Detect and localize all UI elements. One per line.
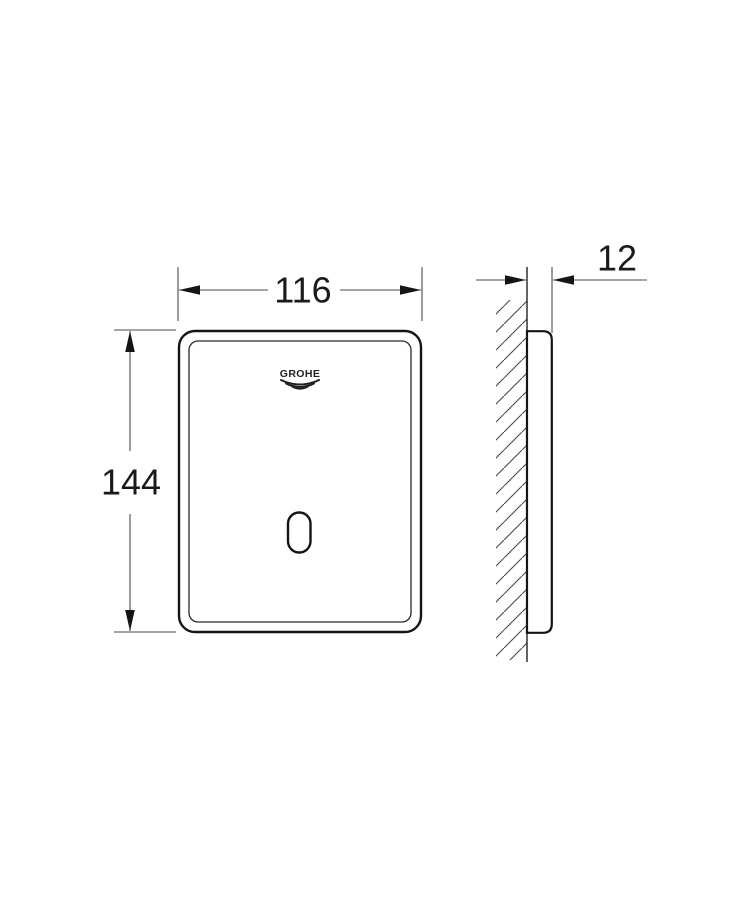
sensor-window xyxy=(288,513,311,553)
front-view: GROHE xyxy=(179,331,421,632)
dimension-width: 116 xyxy=(178,267,422,321)
drawing-page: GROHE 116 xyxy=(0,0,750,900)
height-dimension-label: 144 xyxy=(101,462,161,503)
depth-dimension-label: 12 xyxy=(597,238,637,279)
height-arrow-top-icon xyxy=(125,331,135,352)
height-arrow-bottom-icon xyxy=(125,610,135,631)
grohe-logo-text: GROHE xyxy=(280,368,321,380)
side-view xyxy=(496,267,552,662)
flush-plate-dimension-drawing: GROHE 116 xyxy=(0,0,750,900)
width-dimension-label: 116 xyxy=(274,270,331,311)
dimension-height: 144 xyxy=(101,330,176,632)
width-arrow-left-icon xyxy=(179,285,200,295)
wall-hatching xyxy=(496,300,527,660)
width-arrow-right-icon xyxy=(400,285,421,295)
plate-side-profile xyxy=(527,331,552,633)
depth-arrow-right-icon xyxy=(553,275,574,285)
depth-arrow-left-icon xyxy=(505,275,526,285)
